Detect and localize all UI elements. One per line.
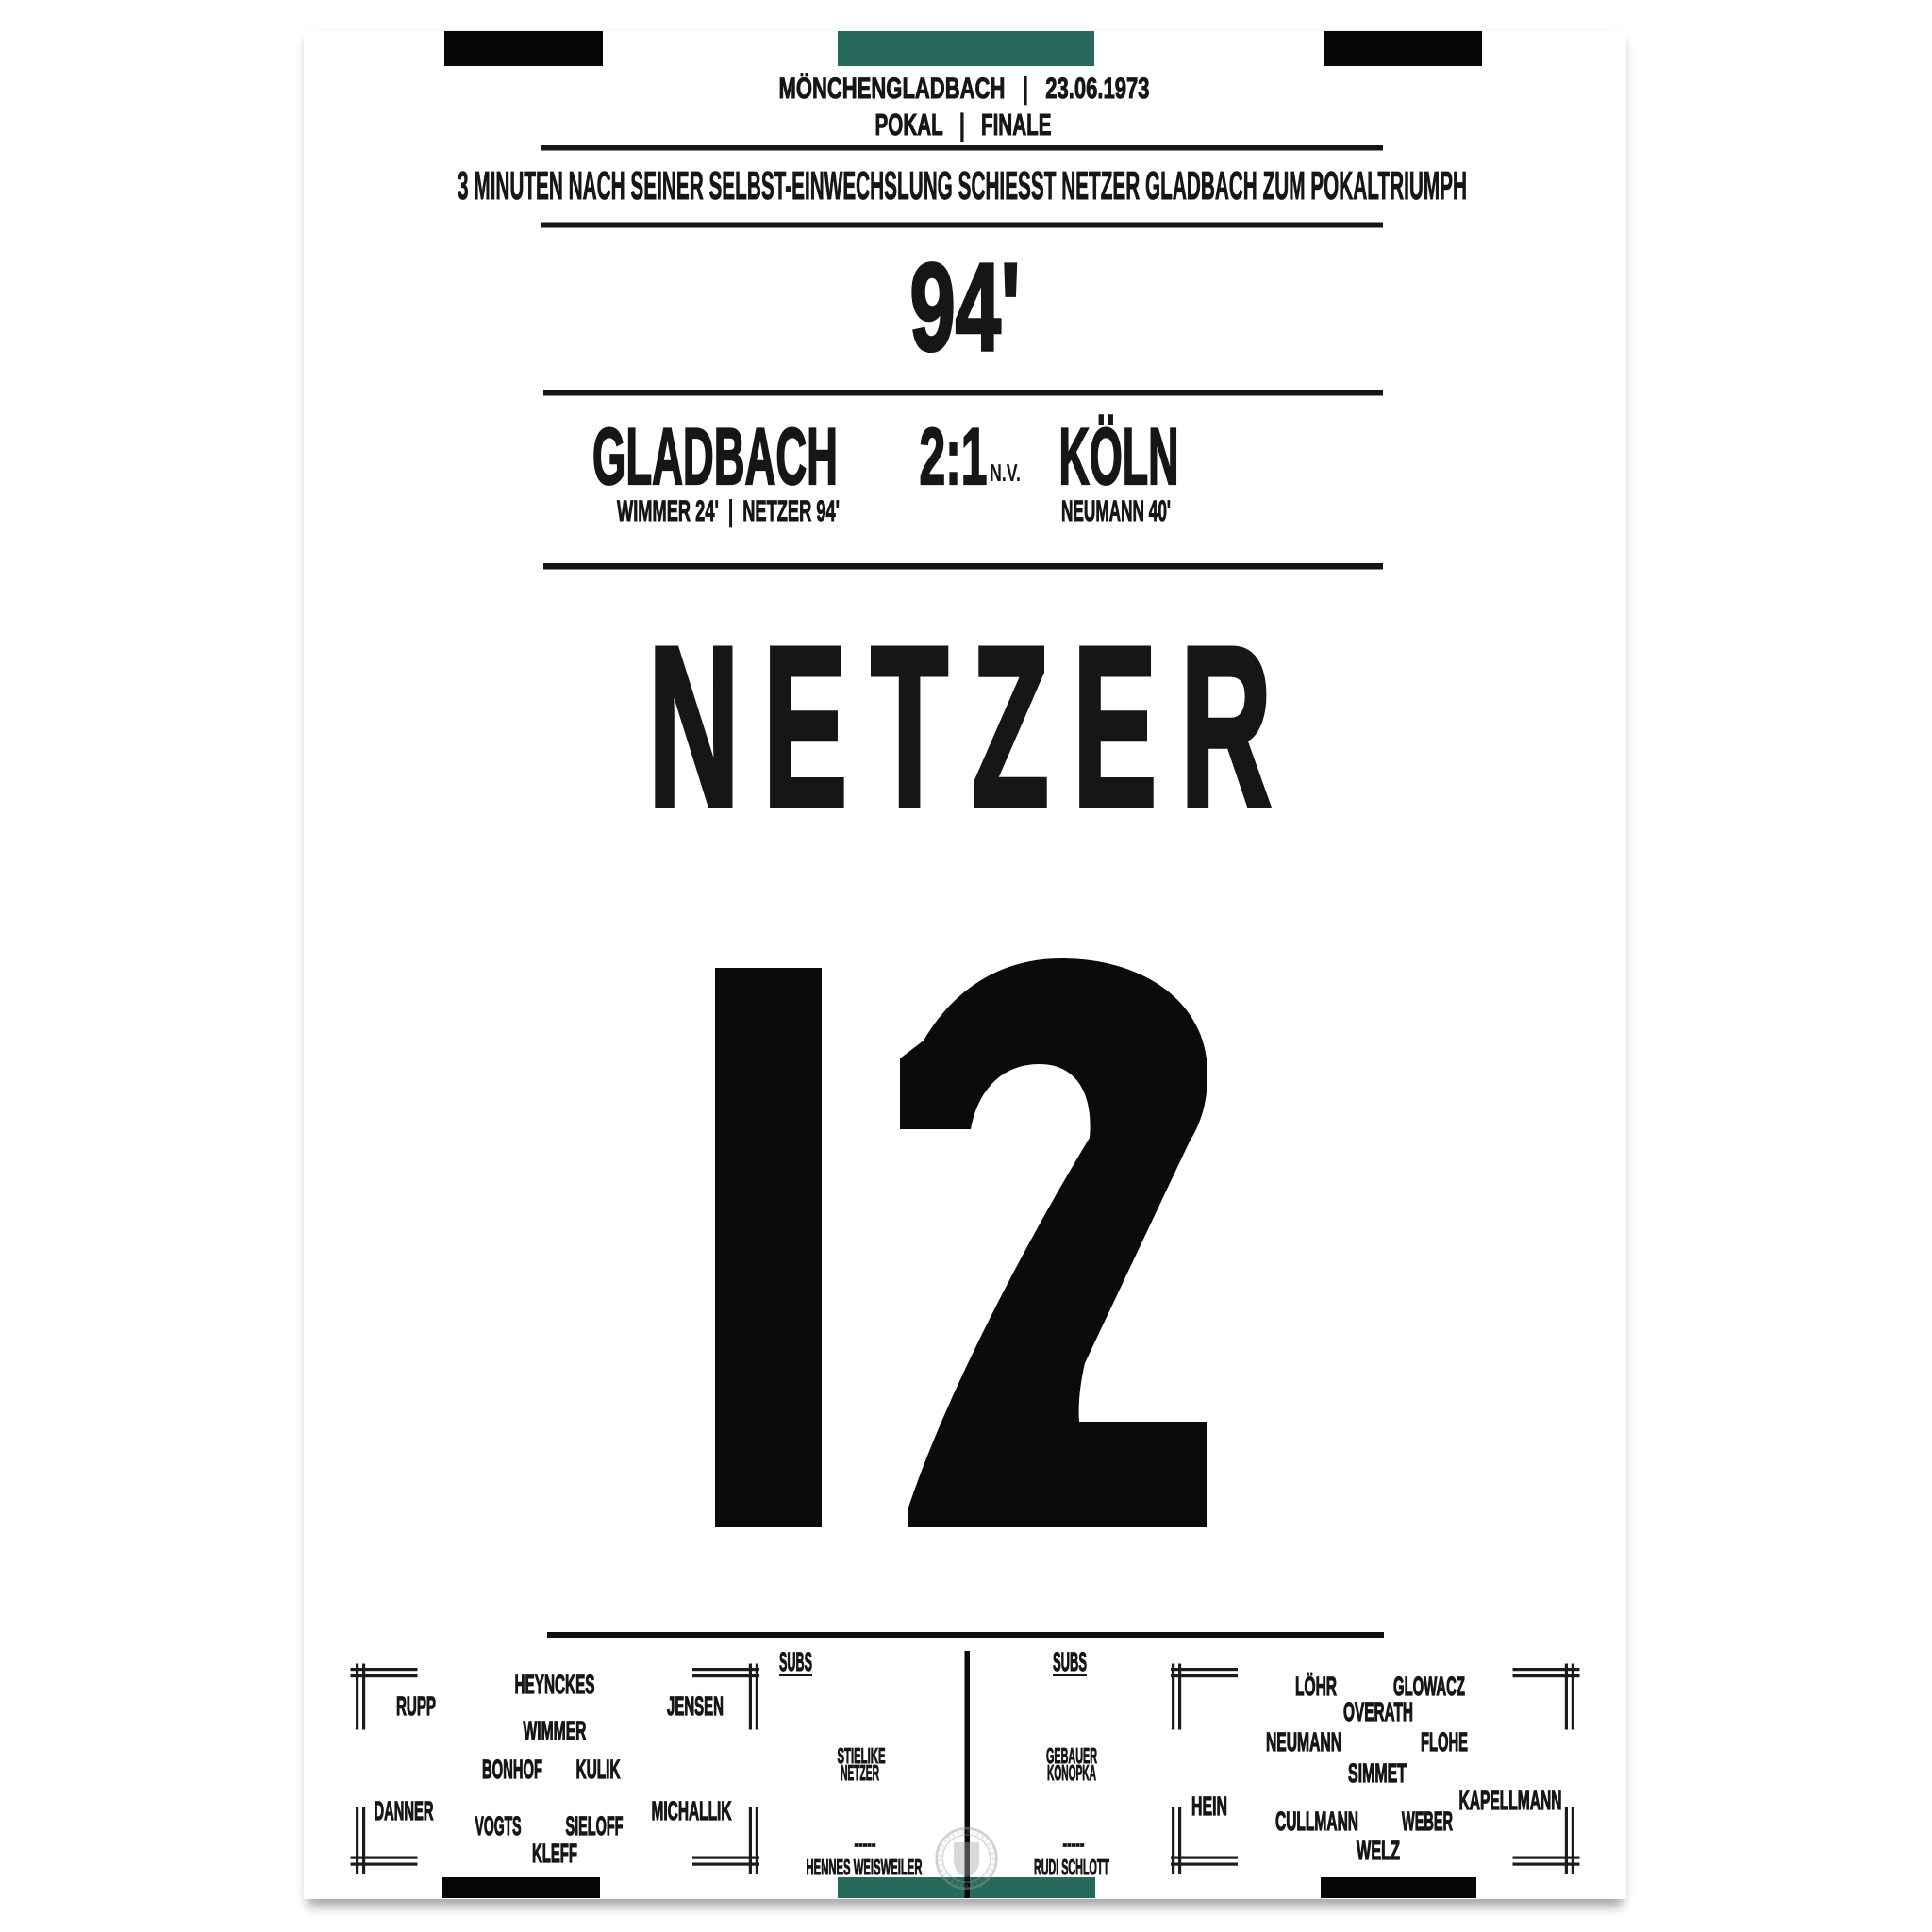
- svg-text:GLADBACH: GLADBACH: [592, 412, 838, 502]
- svg-text:-----: -----: [1063, 1831, 1085, 1856]
- svg-text:HEYNCKES: HEYNCKES: [515, 1670, 595, 1699]
- svg-text:SUBS: SUBS: [779, 1647, 812, 1676]
- svg-text:VOGTS: VOGTS: [475, 1811, 522, 1840]
- svg-text:WEBER: WEBER: [1402, 1807, 1453, 1836]
- svg-text:KONOPKA: KONOPKA: [1047, 1760, 1096, 1785]
- svg-text:NETZER: NETZER: [648, 600, 1295, 855]
- svg-text:MÖNCHENGLADBACH | 23.06.19: MÖNCHENGLADBACH | 23.06.1973: [779, 72, 1150, 105]
- svg-text:SIELOFF: SIELOFF: [566, 1811, 624, 1840]
- svg-text:BONHOF: BONHOF: [482, 1755, 542, 1784]
- svg-text:3 MINUTEN NACH SEINER SELBST-E: 3 MINUTEN NACH SEINER SELBST-EINWECHSLUN…: [458, 163, 1467, 208]
- svg-text:DANNER: DANNER: [375, 1796, 434, 1825]
- svg-text:2:1: 2:1: [920, 412, 988, 502]
- svg-text:SIMMET: SIMMET: [1348, 1758, 1407, 1788]
- svg-text:KULIK: KULIK: [576, 1755, 621, 1784]
- svg-text:RUPP: RUPP: [396, 1691, 436, 1721]
- svg-text:LÖHR: LÖHR: [1295, 1672, 1337, 1701]
- svg-text:NEUMANN 40': NEUMANN 40': [1061, 494, 1171, 527]
- svg-text:NETZER: NETZER: [841, 1760, 879, 1785]
- svg-text:94': 94': [910, 238, 1021, 376]
- svg-text:WELZ: WELZ: [1357, 1836, 1400, 1865]
- svg-text:KÖLN: KÖLN: [1059, 412, 1179, 502]
- svg-text:OVERATH: OVERATH: [1343, 1697, 1413, 1726]
- svg-text:KAPELLMANN: KAPELLMANN: [1459, 1786, 1562, 1815]
- svg-text:HENNES WEISWEILER: HENNES WEISWEILER: [807, 1855, 923, 1879]
- svg-text:WIMMER: WIMMER: [524, 1716, 587, 1745]
- svg-text:SUBS: SUBS: [1053, 1647, 1087, 1676]
- svg-text:MICHALLIK: MICHALLIK: [652, 1796, 732, 1825]
- svg-text:HEIN: HEIN: [1191, 1791, 1227, 1821]
- svg-text:CULLMANN: CULLMANN: [1275, 1807, 1358, 1836]
- svg-text:KLEFF: KLEFF: [532, 1839, 577, 1868]
- svg-text:RUDI SCHLOTT: RUDI SCHLOTT: [1034, 1855, 1109, 1879]
- svg-text:-----: -----: [855, 1831, 876, 1856]
- svg-text:WIMMER 24' | NETZER 94': WIMMER 24' | NETZER 94': [617, 494, 840, 527]
- svg-text:NEUMANN: NEUMANN: [1266, 1727, 1341, 1757]
- svg-text:N.V.: N.V.: [990, 458, 1021, 487]
- svg-text:FLOHE: FLOHE: [1421, 1727, 1468, 1757]
- svg-text:JENSEN: JENSEN: [667, 1691, 724, 1721]
- svg-text:POKAL | FINALE: POKAL | FINALE: [875, 108, 1052, 142]
